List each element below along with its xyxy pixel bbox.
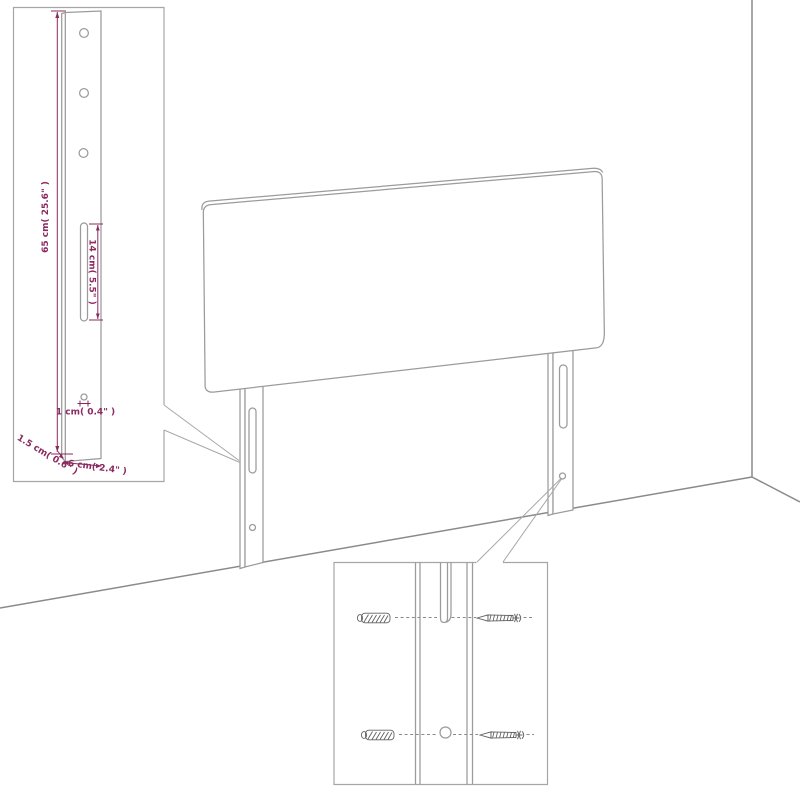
- callout-wedge-right: [477, 479, 562, 563]
- floor-line-right: [752, 477, 800, 502]
- product-diagram: 65 cm( 25.6" ) 14 cm( 5.5" ) 1 cm( 0.4" …: [0, 0, 800, 800]
- callout-wedge-left: [164, 405, 240, 463]
- dimension-label-leg-height: 65 cm( 25.6" ): [41, 181, 51, 253]
- leg-right-cutouts: [560, 365, 568, 428]
- dimension-label-slot-length: 14 cm( 5.5" ): [87, 239, 97, 305]
- leg-left-side-face: [240, 382, 245, 569]
- dimension-label-hole-diameter: 1 cm( 0.4" ): [56, 408, 115, 418]
- leg-post-drawing: [62, 11, 101, 462]
- headboard-panel: [202, 168, 604, 392]
- panel-front-face: [203, 172, 604, 393]
- leg-left-screw-hole: [250, 525, 256, 531]
- inset-mounting-detail: [334, 563, 548, 785]
- leg-right-slot: [560, 365, 568, 428]
- leg-right-screw-hole: [560, 473, 566, 479]
- inset-leg-detail: 65 cm( 25.6" ) 14 cm( 5.5" ) 1 cm( 0.4" …: [14, 8, 165, 482]
- leg-left-slot: [249, 408, 256, 473]
- diagram-canvas: 65 cm( 25.6" ) 14 cm( 5.5" ) 1 cm( 0.4" …: [0, 0, 800, 800]
- leg-left-cutouts: [249, 408, 256, 473]
